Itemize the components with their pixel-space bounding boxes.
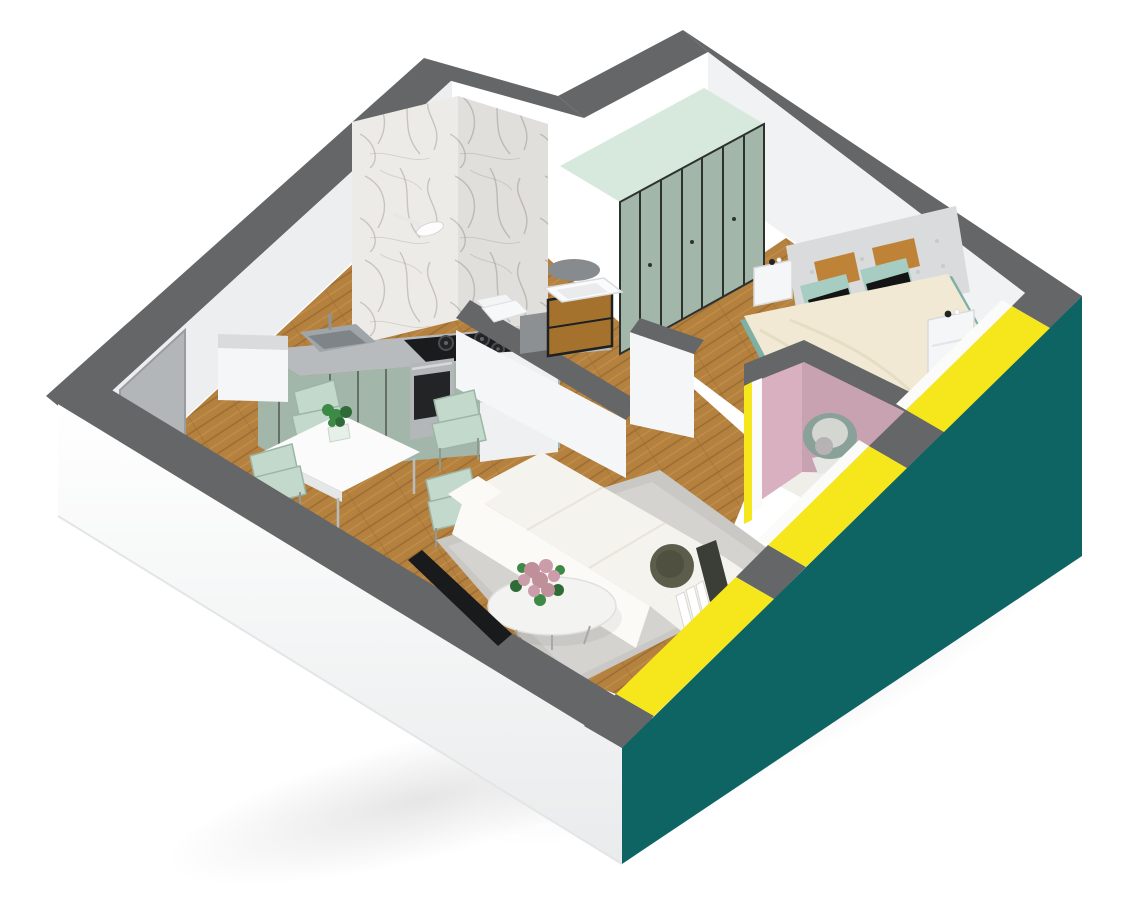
kitchen-return-wall-top [218, 334, 288, 350]
papasan-blanket [815, 437, 833, 455]
mirror [548, 259, 600, 281]
olive-cushion-inner [656, 550, 684, 578]
washer [520, 312, 548, 354]
balcony-window-jamb-white [752, 378, 762, 512]
balcony-window-jamb-yellow [744, 382, 752, 524]
apartment-3d-render [0, 0, 1140, 905]
marble-wall-left [352, 96, 458, 346]
